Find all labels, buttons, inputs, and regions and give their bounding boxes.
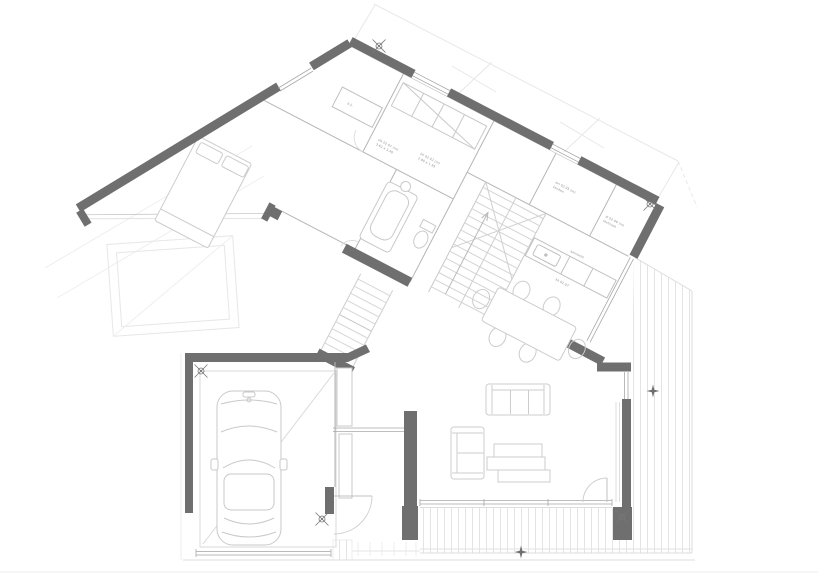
east-inner-glass bbox=[616, 402, 620, 502]
coffee-table bbox=[487, 444, 550, 482]
central-pier-base bbox=[402, 506, 418, 540]
garage-north-wall-tip bbox=[348, 345, 370, 363]
hall-window bbox=[333, 428, 404, 432]
survey-marker bbox=[316, 513, 329, 526]
chevron-wall bbox=[566, 342, 631, 367]
dining-table bbox=[481, 287, 577, 361]
hall-closet bbox=[337, 368, 352, 426]
sofa-three-seat bbox=[486, 384, 550, 415]
kitchen-counter bbox=[525, 238, 616, 298]
sofa-two-seat bbox=[451, 427, 484, 479]
terrace-door-swing bbox=[583, 478, 607, 502]
car bbox=[211, 391, 287, 545]
toilet bbox=[411, 219, 436, 250]
garage-north-wall bbox=[185, 353, 348, 362]
room-label: kk 02.07 bbox=[555, 278, 570, 288]
east-window bbox=[625, 372, 629, 399]
central-pier bbox=[404, 411, 417, 508]
hall-closet bbox=[339, 434, 352, 498]
closet-box bbox=[332, 87, 382, 127]
survey-marker bbox=[373, 40, 386, 53]
floor-plan-sheet: b.k. slk 02.01 (m) 3.62 x 3.40 bk 02.02 … bbox=[0, 0, 818, 578]
entry-door-swing bbox=[334, 496, 372, 534]
entry-porch-deck bbox=[333, 540, 352, 560]
garage-west-wall bbox=[185, 353, 193, 513]
garage-door bbox=[196, 549, 331, 557]
upper-wing: b.k. slk 02.01 (m) 3.62 x 3.40 bk 02.02 … bbox=[73, 0, 663, 455]
bathtub bbox=[359, 181, 419, 253]
floor-plan-canvas: b.k. slk 02.01 (m) 3.62 x 3.40 bk 02.02 … bbox=[0, 0, 818, 578]
patio-outline bbox=[107, 236, 239, 337]
entry-pier bbox=[325, 487, 334, 514]
wardrobe bbox=[391, 83, 486, 149]
